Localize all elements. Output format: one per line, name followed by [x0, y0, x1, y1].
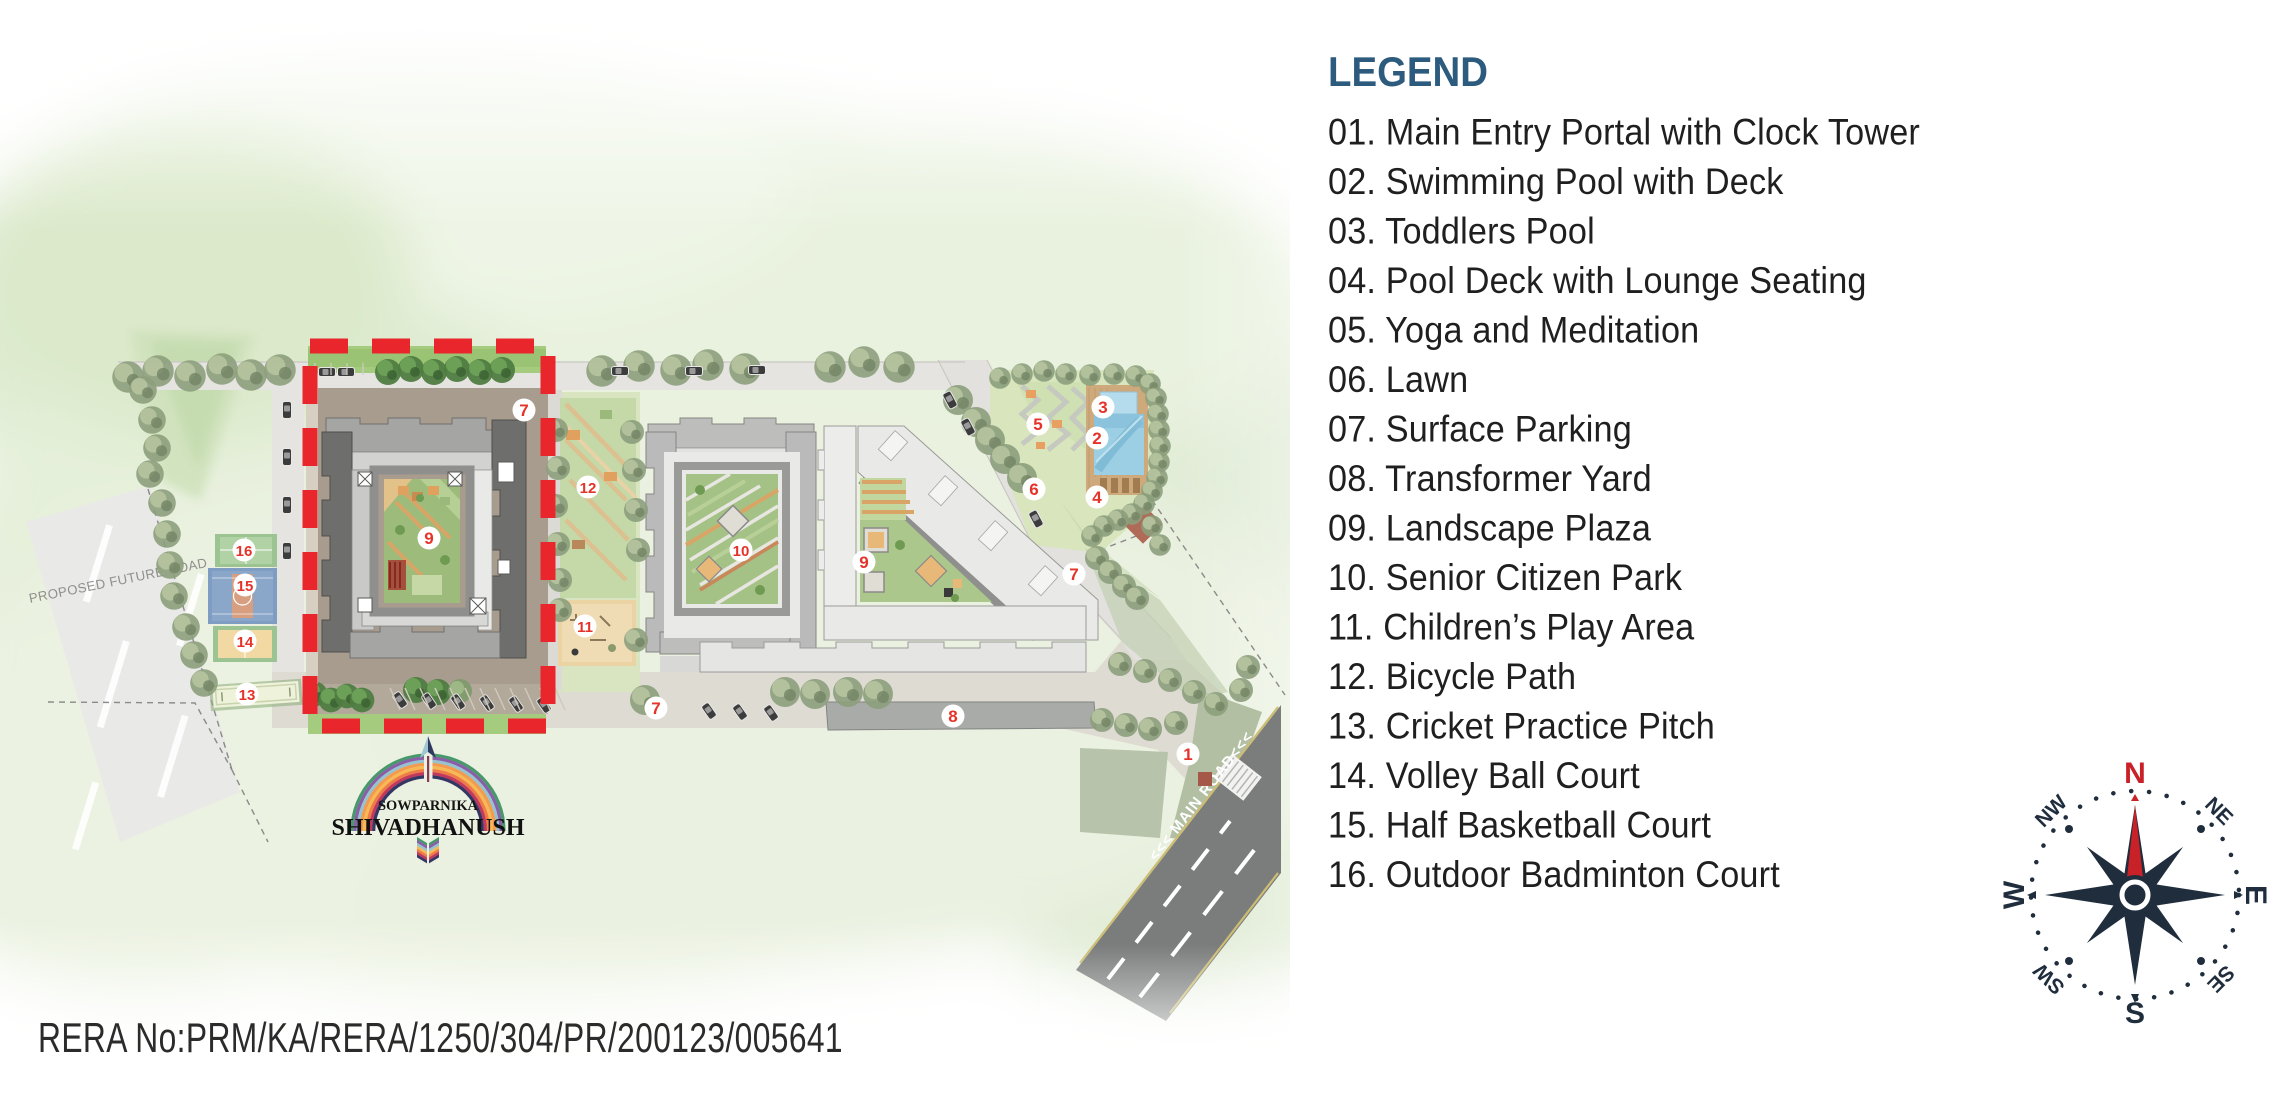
svg-text:7: 7 [1069, 565, 1078, 584]
svg-text:11. Children’s Play Area: 11. Children’s Play Area [1328, 606, 1694, 648]
svg-text:9: 9 [424, 529, 433, 548]
svg-text:1: 1 [1183, 745, 1192, 764]
svg-text:01. Main Entry Portal with Clo: 01. Main Entry Portal with Clock Tower [1328, 111, 1920, 153]
svg-text:S: S [2125, 997, 2145, 1030]
svg-text:09. Landscape Plaza: 09. Landscape Plaza [1328, 507, 1651, 549]
svg-text:05. Yoga and Meditation: 05. Yoga and Meditation [1328, 309, 1699, 351]
svg-text:12: 12 [580, 480, 597, 497]
svg-text:SHIVADHANUSH: SHIVADHANUSH [332, 815, 525, 841]
svg-text:3: 3 [1098, 398, 1107, 417]
svg-text:04. Pool Deck with Lounge Seat: 04. Pool Deck with Lounge Seating [1328, 260, 1867, 302]
svg-text:8: 8 [948, 707, 957, 726]
svg-text:12. Bicycle Path: 12. Bicycle Path [1328, 656, 1576, 698]
svg-text:LEGEND: LEGEND [1328, 48, 1488, 95]
svg-text:15: 15 [237, 578, 254, 595]
svg-text:07. Surface Parking: 07. Surface Parking [1328, 408, 1632, 450]
svg-text:7: 7 [651, 699, 660, 718]
svg-text:15. Half Basketball Court: 15. Half Basketball Court [1328, 804, 1711, 846]
svg-text:4: 4 [1092, 488, 1102, 507]
svg-text:13: 13 [239, 687, 256, 704]
svg-text:11: 11 [577, 619, 593, 636]
svg-text:10: 10 [733, 543, 750, 560]
svg-text:RERA No:PRM/KA/RERA/1250/304/P: RERA No:PRM/KA/RERA/1250/304/PR/200123/0… [38, 1014, 843, 1061]
svg-text:10. Senior Citizen Park: 10. Senior Citizen Park [1328, 557, 1682, 599]
svg-text:2: 2 [1092, 429, 1101, 448]
svg-text:E: E [2239, 885, 2272, 905]
svg-text:14: 14 [237, 634, 254, 651]
svg-text:03. Toddlers Pool: 03. Toddlers Pool [1328, 210, 1595, 252]
svg-text:9: 9 [859, 553, 868, 572]
svg-text:7: 7 [519, 401, 528, 420]
svg-text:6: 6 [1029, 480, 1038, 499]
svg-text:SOWPARNIKA: SOWPARNIKA [378, 798, 479, 814]
svg-text:06. Lawn: 06. Lawn [1328, 359, 1468, 401]
svg-text:N: N [2124, 757, 2146, 790]
svg-text:14. Volley Ball Court: 14. Volley Ball Court [1328, 755, 1640, 797]
svg-text:02. Swimming Pool with Deck: 02. Swimming Pool with Deck [1328, 161, 1784, 203]
svg-text:16. Outdoor Badminton Court: 16. Outdoor Badminton Court [1328, 854, 1780, 896]
svg-text:08. Transformer Yard: 08. Transformer Yard [1328, 458, 1652, 500]
svg-text:16: 16 [236, 543, 253, 560]
svg-text:W: W [1998, 880, 2031, 909]
svg-text:13. Cricket Practice Pitch: 13. Cricket Practice Pitch [1328, 705, 1715, 747]
svg-text:5: 5 [1033, 415, 1042, 434]
